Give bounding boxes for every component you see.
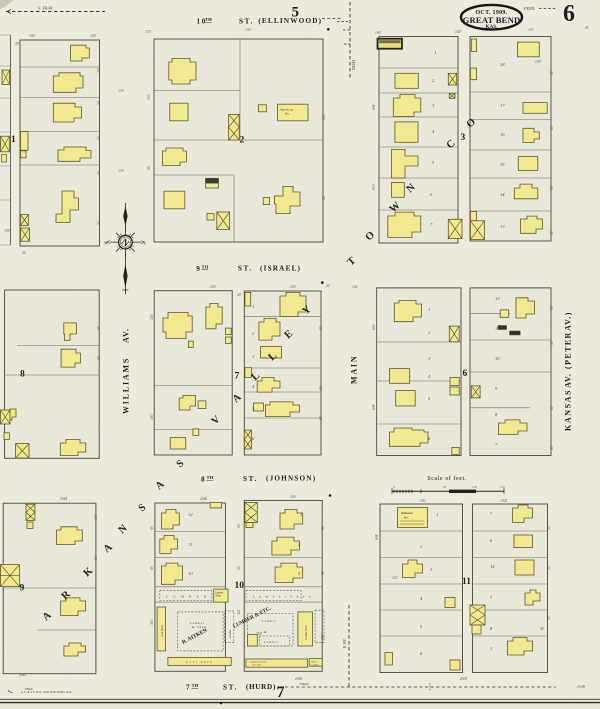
svg-text:150': 150' [256, 632, 262, 636]
svg-text:2046: 2046 [200, 497, 207, 501]
svg-text:WILLIAMS: WILLIAMS [122, 357, 131, 414]
svg-text:1: 1 [434, 50, 436, 55]
svg-text:303: 303 [322, 114, 326, 120]
svg-text:1: 1 [300, 512, 302, 517]
svg-text:E. FRAN.: E. FRAN. [37, 6, 53, 11]
svg-text:50: 50 [97, 136, 101, 140]
svg-text:50: 50 [237, 566, 241, 570]
svg-text:30: 30 [550, 406, 554, 410]
svg-text:30: 30 [550, 231, 554, 235]
svg-text:11: 11 [188, 542, 192, 547]
svg-text:30: 30 [550, 446, 554, 450]
svg-text:20': 20' [15, 42, 20, 46]
svg-text:12: 12 [495, 296, 500, 301]
svg-text:2044: 2044 [60, 497, 67, 501]
svg-text:Lumber: Lumber [262, 619, 277, 623]
svg-text:150: 150 [500, 485, 505, 489]
svg-text:Coal Shed: Coal Shed [186, 660, 213, 664]
svg-text:10: 10 [495, 356, 500, 361]
svg-text:50: 50 [97, 356, 101, 360]
svg-text:Lumber Shed: Lumber Shed [305, 625, 308, 640]
svg-text:303: 303 [94, 514, 98, 520]
svg-text:130': 130' [535, 60, 541, 64]
svg-text:303: 303 [97, 67, 101, 73]
svg-text:AV.): AV.) [564, 311, 573, 331]
svg-text:A.T. & S.F. R.R. AND MID KANS.: A.T. & S.F. R.R. AND MID KANS. R.R. [21, 691, 73, 694]
svg-text:Jones &c: Jones &c [252, 664, 262, 667]
svg-text:50: 50 [147, 166, 151, 170]
svg-text:L U M B E R: L U M B E R [166, 595, 208, 599]
svg-text:40: 40 [540, 627, 544, 631]
svg-text:16: 16 [500, 132, 505, 137]
svg-text:c: c [490, 510, 492, 515]
svg-text:26: 26 [22, 251, 26, 255]
svg-text:50: 50 [319, 416, 323, 420]
svg-text:Lumber: Lumber [229, 629, 232, 638]
svg-text:130': 130' [118, 89, 124, 93]
svg-text:20': 20' [237, 293, 242, 297]
svg-text:50: 50 [94, 556, 98, 560]
svg-text:1893: 1893 [4, 229, 11, 233]
svg-text:100': 100' [29, 34, 35, 38]
svg-text:7: 7 [186, 684, 191, 692]
svg-text:303: 303 [321, 634, 325, 640]
svg-text:30: 30 [550, 126, 554, 130]
svg-text:130': 130' [118, 169, 124, 173]
svg-text:6: 6 [463, 369, 468, 379]
svg-text:(PETER: (PETER [564, 331, 573, 369]
svg-text:30: 30 [550, 186, 554, 190]
svg-text:ST.: ST. [239, 17, 254, 25]
svg-text:FENN.: FENN. [523, 6, 535, 11]
svg-text:50: 50 [319, 386, 323, 390]
svg-text:ST.: ST. [243, 475, 258, 483]
svg-text:FRAN.: FRAN. [24, 687, 33, 691]
svg-text:(HURD): (HURD) [246, 683, 276, 691]
svg-text:50: 50 [237, 524, 241, 528]
svg-text:5: 5 [292, 5, 300, 21]
svg-text:(JOHNSON): (JOHNSON) [266, 475, 316, 483]
svg-text:1: 1 [490, 646, 492, 651]
svg-text:TH: TH [192, 683, 199, 688]
svg-text:KANSAS: KANSAS [564, 389, 573, 431]
svg-text:2038: 2038 [460, 677, 467, 681]
svg-text:303: 303 [147, 94, 151, 100]
svg-text:300: 300 [150, 414, 154, 420]
svg-text:20': 20' [326, 284, 331, 288]
svg-text:50: 50 [97, 326, 101, 330]
svg-text:14: 14 [490, 564, 495, 569]
svg-text:ST.: ST. [223, 683, 238, 691]
svg-text:110': 110' [392, 576, 398, 580]
svg-text:30: 30 [547, 566, 551, 570]
svg-text:TH: TH [205, 17, 212, 22]
svg-text:Ho.: Ho. [285, 112, 290, 116]
svg-text:100: 100 [472, 485, 477, 489]
svg-text:AV.: AV. [564, 373, 573, 388]
svg-text:L u m b e r S h e d: L u m b e r S h e d [253, 595, 312, 599]
svg-text:50: 50 [319, 326, 323, 330]
svg-text:1: 1 [252, 304, 254, 309]
svg-text:15: 15 [500, 162, 505, 167]
svg-text:30: 30 [547, 526, 551, 530]
svg-text:7: 7 [277, 684, 285, 701]
svg-text:11: 11 [495, 326, 499, 331]
svg-text:16 88: 16 88 [577, 685, 585, 689]
svg-text:3: 3 [461, 133, 466, 143]
svg-text:13: 13 [500, 224, 505, 229]
svg-text:100: 100 [210, 285, 216, 289]
svg-text:(ELLINWOOD): (ELLINWOOD) [258, 17, 322, 25]
svg-text:FENN.: FENN. [351, 60, 355, 71]
svg-text:8: 8 [201, 476, 206, 484]
svg-text:11: 11 [462, 577, 471, 587]
svg-text:Shed: Shed [216, 595, 222, 598]
svg-text:(ISRAEL): (ISRAEL) [260, 264, 301, 272]
svg-text:303: 303 [237, 609, 241, 615]
svg-text:50: 50 [321, 526, 325, 530]
svg-text:14: 14 [500, 192, 505, 197]
svg-text:30: 30 [547, 616, 551, 620]
svg-text:50: 50 [97, 101, 101, 105]
svg-text:130': 130' [245, 28, 251, 32]
svg-text:50: 50 [322, 196, 326, 200]
svg-text:17: 17 [500, 103, 505, 108]
svg-text:9: 9 [20, 584, 25, 594]
svg-text:TH: TH [207, 475, 214, 480]
svg-text:7: 7 [235, 371, 240, 381]
svg-text:Ho.: Ho. [404, 516, 409, 520]
svg-text:130': 130' [145, 30, 151, 34]
svg-text:30: 30 [550, 341, 554, 345]
svg-text:ST.: ST. [238, 265, 253, 273]
svg-text:303: 303 [150, 619, 154, 625]
svg-text:50: 50 [150, 526, 154, 530]
svg-text:FRAN.: FRAN. [299, 682, 309, 686]
svg-text:Coal&c: Coal&c [311, 663, 318, 666]
svg-text:100: 100 [290, 285, 296, 289]
svg-text:12: 12 [188, 512, 193, 517]
svg-text:100: 100 [290, 495, 296, 499]
svg-text:50: 50 [97, 221, 101, 225]
svg-text:W: W [104, 241, 108, 245]
svg-text:AV.: AV. [122, 328, 131, 343]
svg-text:50: 50 [443, 485, 447, 489]
svg-text:2040: 2040 [295, 677, 302, 681]
svg-text:608: 608 [372, 404, 376, 410]
svg-text:Tanner: Tanner [401, 511, 413, 515]
svg-text:&: & [264, 630, 267, 634]
svg-text:610: 610 [372, 184, 376, 190]
svg-text:100': 100' [455, 30, 461, 34]
svg-text:1302: 1302 [500, 499, 507, 503]
svg-text:1: 1 [428, 307, 430, 312]
svg-text:10: 10 [188, 571, 193, 576]
svg-text:10: 10 [235, 581, 245, 591]
svg-text:8: 8 [20, 370, 25, 380]
svg-text:6: 6 [563, 1, 575, 27]
svg-text:608: 608 [375, 534, 379, 540]
svg-text:30: 30 [550, 306, 554, 310]
svg-text:600: 600 [372, 324, 376, 330]
svg-text:Scale of feet.: Scale of feet. [427, 475, 466, 482]
svg-text:KAS.: KAS. [486, 24, 499, 30]
svg-text:18: 18 [500, 62, 505, 67]
svg-text:2042: 2042 [19, 673, 26, 677]
svg-text:300: 300 [150, 314, 154, 320]
svg-text:1: 1 [436, 512, 438, 517]
svg-text:100': 100' [375, 31, 381, 35]
svg-text:50: 50 [150, 566, 154, 570]
svg-text:Lumber: Lumber [264, 641, 279, 644]
svg-text:30: 30 [550, 71, 554, 75]
svg-text:1: 1 [11, 135, 16, 145]
svg-text:2: 2 [240, 136, 245, 146]
svg-text:45: 45 [585, 26, 589, 30]
svg-text:50: 50 [97, 171, 101, 175]
svg-text:MAIN: MAIN [350, 355, 359, 384]
svg-text:100: 100 [420, 499, 426, 503]
svg-text:608: 608 [372, 104, 376, 110]
svg-text:102: 102 [352, 285, 358, 289]
svg-text:TH: TH [202, 265, 209, 270]
svg-text:E. RY.: E. RY. [343, 638, 347, 648]
svg-text:100': 100' [90, 34, 96, 38]
svg-text:110': 110' [528, 28, 534, 32]
svg-text:50: 50 [321, 571, 325, 575]
svg-text:Coal Shed: Coal Shed [161, 625, 164, 637]
